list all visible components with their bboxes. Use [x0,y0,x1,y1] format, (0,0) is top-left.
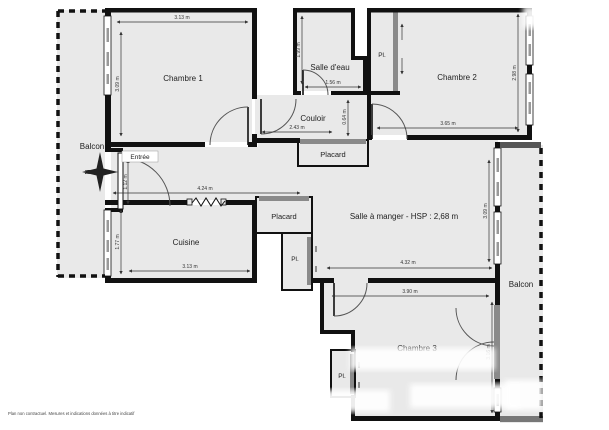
dim-hallway-width: 2.43 m [289,125,304,131]
dim-kitchen-width: 3.13 m [182,264,197,270]
dim-entry-height: 1.12 m [123,174,129,189]
room-label-closet-top: Pl. [378,52,386,59]
dim-kitchen-height: 1.77 m [115,234,121,249]
outside-notch [258,233,282,282]
room-label-closet-bedroom3: Pl. [338,373,346,380]
room-label-bathroom: Salle d'eau [310,63,349,72]
room-label-bedroom2: Chambre 2 [437,73,477,82]
room-label-closet-hallway: Placard [320,150,345,159]
window-bedroom2-lower [526,74,533,125]
dim-bedroom1-height: 3.09 m [115,76,121,91]
window-dining-lower [494,212,501,264]
closet-hallway-sliding-door [300,139,366,144]
room-label-balcony-right: Balcon [509,280,533,289]
compass-north-letter: N [85,169,92,174]
dim-bedroom1-width: 3.13 m [174,15,189,21]
dim-bathroom-width: 1.56 m [325,80,340,86]
dim-kitchen-top-width: 4.24 m [197,186,212,192]
room-label-balcony-left: Balcon [80,142,104,151]
closet-dining-sliding-door [307,237,311,285]
dim-hallway-height: 0.64 m [342,109,348,124]
room-label-dining: Salle à manger - HSP : 2,68 m [350,212,459,221]
dim-bathroom-height: 1.99 m [296,42,302,57]
dim-dining-width: 4.32 m [400,260,415,266]
room-label-entry: Entrée [130,154,150,161]
room-label-closet-kitchen: Placard [271,212,296,221]
closet-top-sliding-door [393,12,398,91]
floor-plan-drawing: N 3.13 m 3.09 m 1.99 m 1.56 m 2.43 m 0.6… [0,0,609,430]
room-label-kitchen: Cuisine [173,238,200,247]
dim-bedroom2-height: 2.98 m [512,65,518,80]
window-dining-upper [494,148,501,206]
dim-bedroom2-width: 3.65 m [440,121,455,127]
floor-plan: N 3.13 m 3.09 m 1.99 m 1.56 m 2.43 m 0.6… [0,0,609,430]
room-label-closet-dining: Pl. [291,256,299,263]
room-label-hallway: Couloir [300,114,326,123]
dim-dining-height: 3.09 m [483,203,489,218]
room-label-bedroom1: Chambre 1 [163,74,203,83]
dim-bedroom3-width: 3.90 m [402,289,417,295]
closet-kitchen-sliding-door [259,196,309,201]
disclaimer-text: Plan non contractuel. Mesures et indicat… [8,411,135,416]
